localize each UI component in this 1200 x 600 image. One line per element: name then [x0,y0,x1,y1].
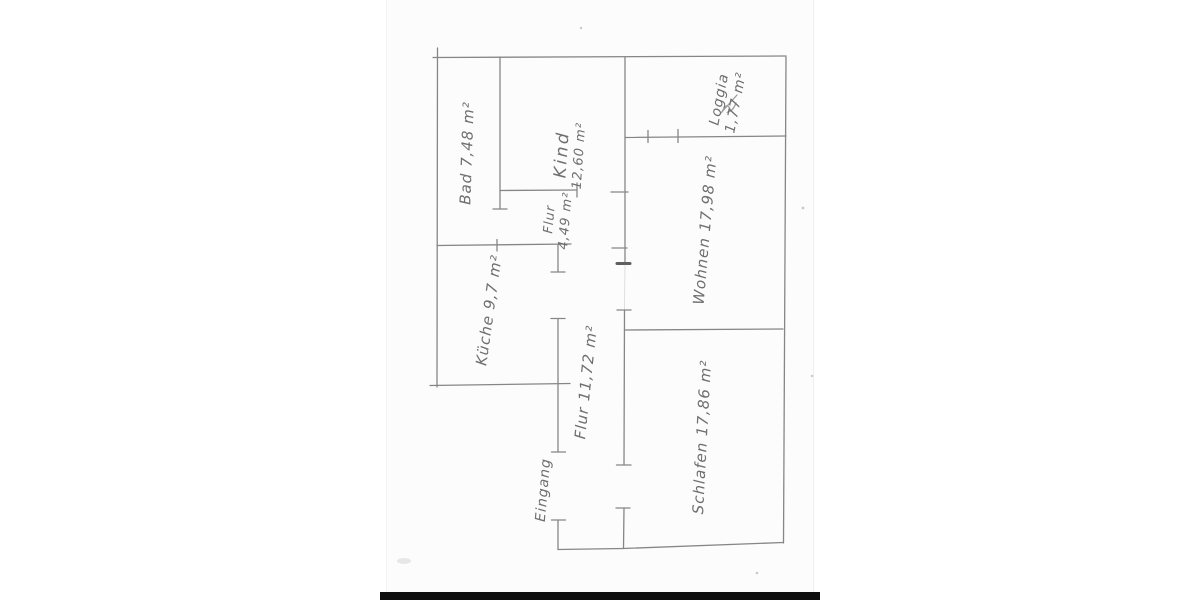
scanned-floor-plan-page: Bad 7,48 m² Kind 12,60 m² Flur 4,49 m² K… [0,0,1200,600]
room-divider-wall [625,329,783,330]
scan-edge-bar [380,592,820,600]
loggia-wall [625,130,786,143]
living-room-wall [611,57,631,549]
hallway-wall [551,245,566,550]
room-label-flur-klein: Flur 4,49 m² [540,190,576,250]
bottom-walls [558,543,783,550]
room-label-kind: Kind 12,60 m² [550,120,591,190]
floor-plan-drawing [0,0,1200,600]
room-label-bad: Bad 7,48 m² [456,101,478,205]
